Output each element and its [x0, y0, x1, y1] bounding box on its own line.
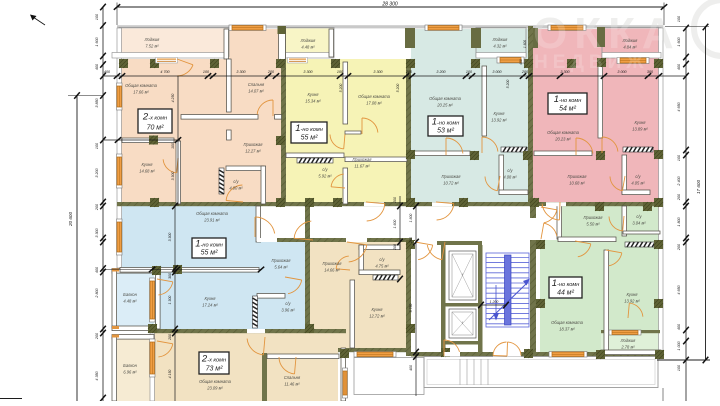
- svg-text:4 150: 4 150: [168, 370, 172, 379]
- svg-text:Общая комната: Общая комната: [199, 379, 232, 384]
- svg-text:3 300: 3 300: [95, 227, 99, 237]
- svg-text:Общая комната: Общая комната: [547, 130, 580, 135]
- svg-text:3 300: 3 300: [168, 233, 172, 242]
- svg-text:4.32 м²: 4.32 м²: [493, 44, 507, 49]
- svg-text:Лоджия: Лоджия: [144, 37, 160, 42]
- svg-text:1 600: 1 600: [677, 36, 681, 46]
- svg-text:200: 200: [95, 203, 99, 211]
- svg-text:54 м²: 54 м²: [559, 106, 577, 113]
- svg-text:6.96 м²: 6.96 м²: [123, 370, 137, 375]
- svg-text:20.25 м²: 20.25 м²: [436, 103, 453, 108]
- svg-text:4 250: 4 250: [171, 94, 175, 103]
- svg-text:11.67 м²: 11.67 м²: [354, 164, 370, 169]
- svg-text:20 600: 20 600: [68, 212, 73, 227]
- svg-text:НЕДВИЖ: НЕДВИЖ: [534, 52, 648, 73]
- svg-text:17.08 м²: 17.08 м²: [366, 101, 382, 106]
- svg-text:Лоджия: Лоджия: [300, 38, 316, 43]
- svg-text:20.23 м²: 20.23 м²: [554, 137, 571, 142]
- svg-text:200: 200: [267, 70, 275, 74]
- svg-text:4 700: 4 700: [160, 70, 170, 74]
- svg-text:Общая комната: Общая комната: [125, 83, 158, 88]
- svg-text:Кухня: Кухня: [372, 307, 384, 312]
- svg-text:400: 400: [677, 63, 681, 70]
- svg-text:3 750: 3 750: [409, 304, 413, 313]
- svg-text:13.89 м²: 13.89 м²: [632, 127, 648, 132]
- svg-text:3 300: 3 300: [560, 70, 570, 74]
- svg-text:Кухня: Кухня: [635, 120, 647, 125]
- svg-text:14.66 м²: 14.66 м²: [324, 268, 340, 273]
- svg-text:200: 200: [677, 243, 681, 251]
- svg-text:100: 100: [677, 364, 681, 371]
- svg-text:23.09 м²: 23.09 м²: [206, 386, 223, 391]
- svg-text:4 650: 4 650: [677, 101, 681, 111]
- svg-text:3 300: 3 300: [171, 172, 175, 181]
- svg-text:Общая комната: Общая комната: [551, 320, 584, 325]
- svg-text:Прихожая: Прихожая: [323, 261, 343, 266]
- svg-text:Общая комната: Общая комната: [196, 211, 229, 216]
- svg-text:7.52 м²: 7.52 м²: [145, 44, 159, 49]
- svg-text:3 300: 3 300: [373, 70, 383, 74]
- svg-text:10.68 м²: 10.68 м²: [569, 181, 585, 186]
- svg-text:3 200: 3 200: [436, 70, 446, 74]
- svg-text:4.08 м²: 4.08 м²: [503, 175, 517, 180]
- svg-text:5 200: 5 200: [506, 80, 510, 89]
- svg-text:200: 200: [393, 197, 397, 204]
- svg-text:Прихожая: Прихожая: [244, 142, 264, 147]
- svg-text:1 300: 1 300: [168, 296, 172, 305]
- svg-text:300: 300: [168, 273, 172, 279]
- svg-text:Прихожая: Прихожая: [272, 258, 292, 263]
- svg-text:5 200: 5 200: [396, 84, 400, 93]
- svg-text:Прихожая: Прихожая: [568, 174, 588, 179]
- svg-text:4.84 м²: 4.84 м²: [623, 45, 637, 50]
- svg-text:1 800: 1 800: [409, 214, 413, 223]
- svg-text:3 000: 3 000: [617, 70, 627, 74]
- svg-text:100: 100: [95, 142, 99, 149]
- svg-text:Лоджия: Лоджия: [620, 338, 636, 343]
- svg-text:13.92 м²: 13.92 м²: [491, 118, 507, 123]
- svg-text:400: 400: [104, 70, 111, 74]
- svg-text:3 300: 3 300: [303, 70, 313, 74]
- svg-text:4 350: 4 350: [95, 370, 99, 380]
- svg-text:100: 100: [95, 13, 99, 20]
- svg-text:400: 400: [95, 63, 99, 70]
- svg-text:1 200: 1 200: [490, 300, 499, 304]
- svg-text:5.50 м²: 5.50 м²: [586, 222, 600, 227]
- svg-text:3 850: 3 850: [95, 97, 99, 107]
- svg-text:Кухня: Кухня: [205, 296, 217, 301]
- svg-text:4.75 м²: 4.75 м²: [375, 264, 389, 269]
- svg-text:5 200: 5 200: [339, 84, 343, 93]
- svg-text:Общая комната: Общая комната: [358, 94, 391, 99]
- svg-text:Балкон: Балкон: [123, 292, 137, 297]
- svg-text:400: 400: [95, 266, 99, 273]
- svg-text:4.48 м²: 4.48 м²: [123, 299, 137, 304]
- svg-text:28 300: 28 300: [381, 2, 398, 8]
- svg-text:Балкон: Балкон: [123, 363, 137, 368]
- svg-text:Лоджия: Лоджия: [492, 37, 508, 42]
- svg-text:14.68 м²: 14.68 м²: [139, 169, 155, 174]
- svg-text:Кухня: Кухня: [494, 111, 506, 116]
- svg-text:400: 400: [519, 59, 523, 65]
- svg-text:17.24 м²: 17.24 м²: [202, 303, 218, 308]
- svg-text:17 600: 17 600: [696, 180, 701, 194]
- svg-text:23.91 м²: 23.91 м²: [203, 218, 220, 223]
- svg-text:200: 200: [95, 332, 99, 340]
- svg-text:ОККА: ОККА: [533, 9, 681, 58]
- svg-text:1 800: 1 800: [677, 216, 681, 226]
- svg-text:4.00 м²: 4.00 м²: [229, 186, 243, 191]
- svg-text:2.78 м²: 2.78 м²: [620, 345, 635, 350]
- svg-text:18.37 м²: 18.37 м²: [559, 327, 575, 332]
- svg-text:100: 100: [171, 143, 175, 149]
- svg-text:73 м²: 73 м²: [206, 366, 224, 373]
- svg-text:13.92 м²: 13.92 м²: [624, 299, 640, 304]
- svg-text:1 600: 1 600: [393, 220, 397, 229]
- svg-text:400: 400: [677, 323, 681, 330]
- svg-text:100: 100: [466, 70, 473, 74]
- svg-text:Спальня: Спальня: [284, 375, 301, 380]
- svg-text:4.48 м²: 4.48 м²: [301, 45, 315, 50]
- svg-text:3 300: 3 300: [236, 70, 246, 74]
- svg-text:5.64 м²: 5.64 м²: [274, 265, 288, 270]
- svg-text:5.92 м²: 5.92 м²: [318, 174, 332, 179]
- svg-text:Лоджия: Лоджия: [622, 38, 638, 43]
- svg-text:1 600: 1 600: [523, 40, 527, 48]
- svg-text:400: 400: [409, 365, 413, 371]
- svg-text:Кухня: Кухня: [627, 292, 639, 297]
- svg-text:12.27 м²: 12.27 м²: [245, 149, 261, 154]
- svg-text:Спальня: Спальня: [248, 82, 265, 87]
- svg-text:Кухня: Кухня: [308, 92, 320, 97]
- svg-text:12.72 м²: 12.72 м²: [369, 314, 385, 319]
- svg-text:4.05 м²: 4.05 м²: [631, 181, 645, 186]
- svg-text:3 000: 3 000: [492, 70, 502, 74]
- svg-text:100: 100: [337, 70, 344, 74]
- svg-text:100: 100: [677, 15, 681, 22]
- svg-text:44 м²: 44 м²: [557, 290, 575, 297]
- svg-text:4 650: 4 650: [677, 284, 681, 294]
- svg-text:200: 200: [393, 244, 397, 251]
- svg-text:70 м²: 70 м²: [147, 125, 165, 132]
- svg-text:Кухня: Кухня: [142, 162, 154, 167]
- svg-text:2 400: 2 400: [677, 175, 681, 186]
- svg-text:3.04 м²: 3.04 м²: [632, 221, 646, 226]
- svg-text:17.66 м²: 17.66 м²: [133, 90, 149, 95]
- svg-text:1 000: 1 000: [677, 340, 681, 350]
- svg-text:53 м²: 53 м²: [437, 128, 455, 135]
- svg-text:2 800: 2 800: [95, 287, 99, 298]
- svg-text:Прихожая: Прихожая: [442, 174, 462, 179]
- svg-text:200: 200: [409, 237, 413, 244]
- svg-text:100: 100: [677, 154, 681, 161]
- svg-text:200: 200: [405, 70, 413, 74]
- svg-text:55 м²: 55 м²: [301, 135, 319, 142]
- svg-text:200: 200: [168, 334, 172, 341]
- svg-text:200: 200: [521, 70, 529, 74]
- svg-text:300: 300: [647, 70, 654, 74]
- svg-text:3.96 м²: 3.96 м²: [281, 308, 295, 313]
- svg-text:1 600: 1 600: [95, 36, 99, 46]
- svg-text:55 м²: 55 м²: [201, 250, 219, 257]
- svg-text:Прихожая: Прихожая: [353, 157, 373, 162]
- svg-text:11.46 м²: 11.46 м²: [284, 382, 300, 387]
- svg-text:14.07 м²: 14.07 м²: [248, 89, 264, 94]
- svg-text:Прихожая: Прихожая: [584, 215, 604, 220]
- svg-text:100: 100: [203, 70, 210, 74]
- svg-text:3 200: 3 200: [95, 167, 99, 177]
- svg-text:15.34 м²: 15.34 м²: [305, 99, 321, 104]
- svg-text:10.72 м²: 10.72 м²: [443, 181, 459, 186]
- svg-text:Общая комната: Общая комната: [429, 96, 462, 101]
- svg-text:200: 200: [677, 193, 681, 201]
